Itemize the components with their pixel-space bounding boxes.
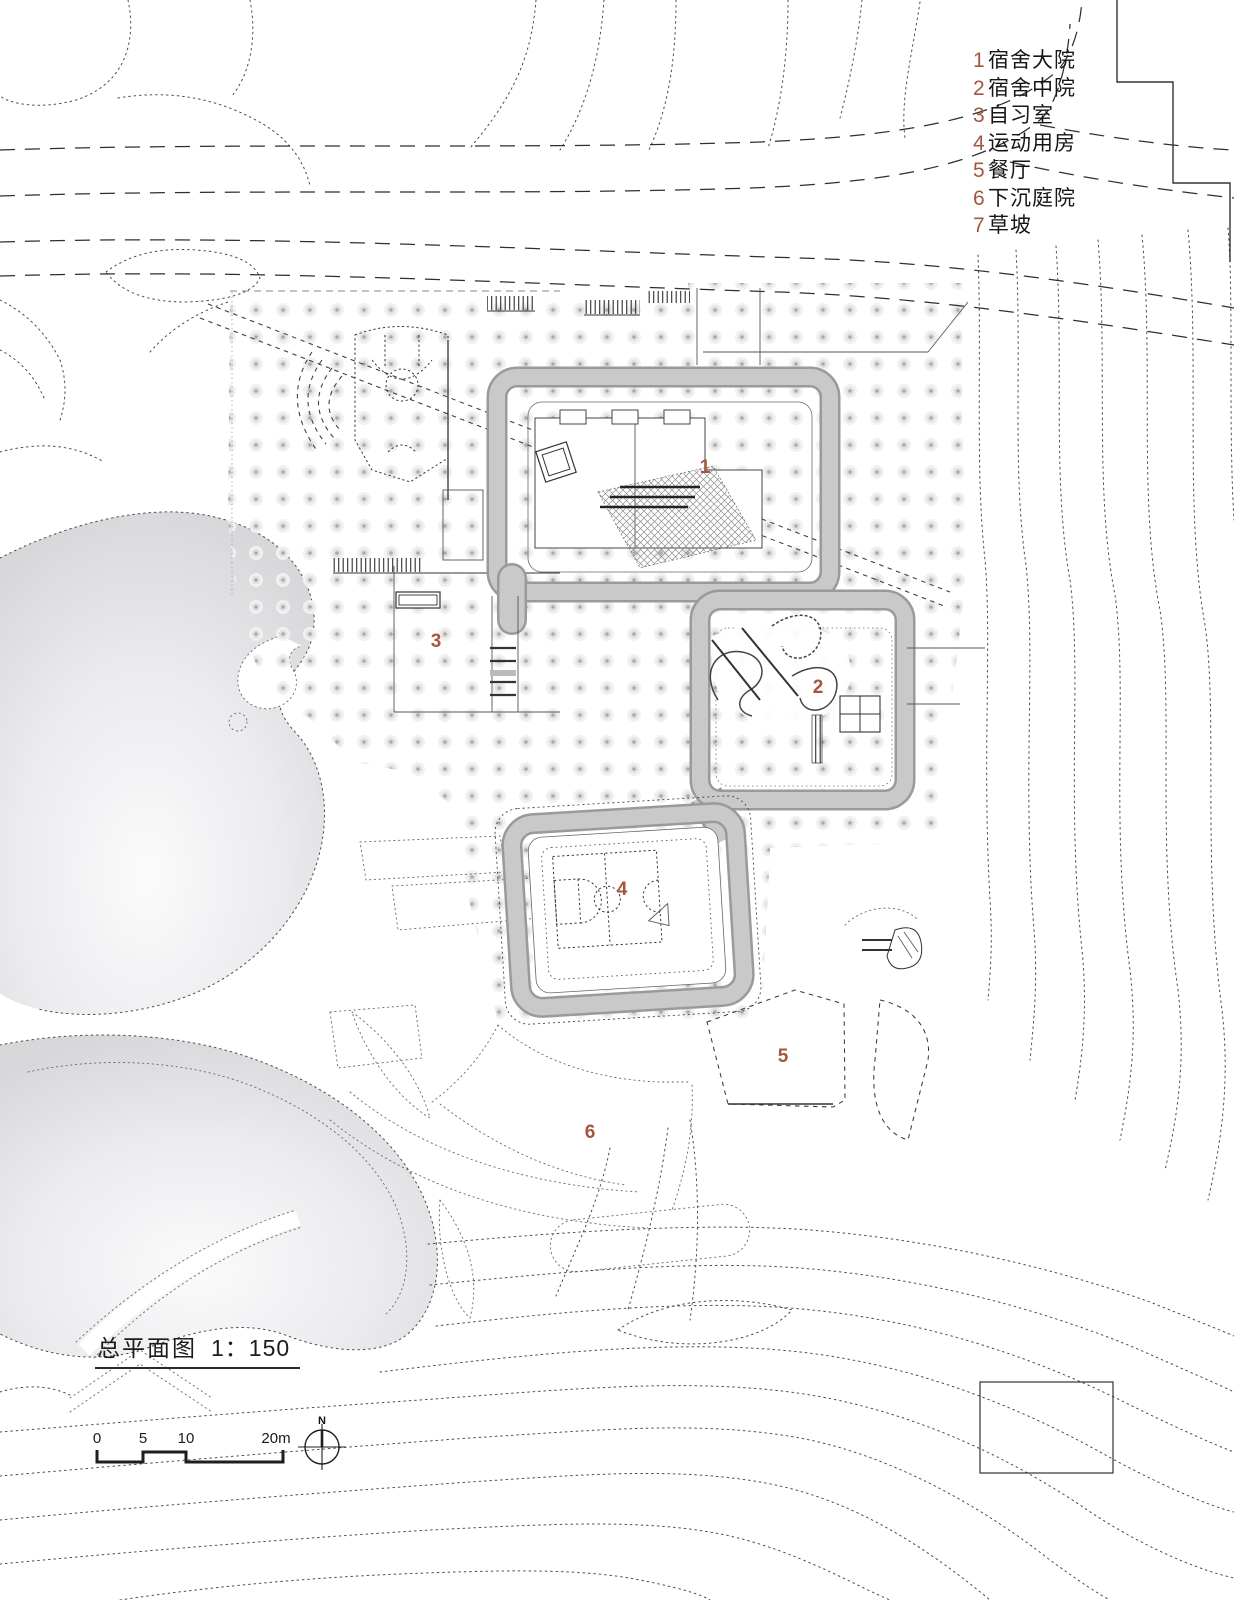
drawing-scale: 1：150 (211, 1335, 290, 1361)
plan-label-6: 6 (585, 1122, 596, 1144)
plan-label-3: 3 (431, 631, 442, 653)
title-block: 总平面图1：150 (95, 1329, 300, 1369)
legend: 1宿舍大院 2宿舍中院 3自习室 4运动用房 5餐厅 6下沉庭院 7草坡 (973, 47, 1076, 240)
scale-bar: 0 5 10 20m (93, 1430, 291, 1462)
legend-number: 2 (973, 75, 988, 103)
legend-number: 7 (973, 212, 988, 240)
north-label: N (318, 1415, 326, 1427)
legend-item: 7草坡 (973, 212, 1076, 240)
legend-label: 宿舍大院 (988, 49, 1076, 72)
scale-tick-10: 10 (178, 1430, 195, 1447)
legend-item: 1宿舍大院 (973, 47, 1076, 75)
legend-item: 4运动用房 (973, 130, 1076, 158)
legend-number: 1 (973, 47, 988, 75)
legend-number: 6 (973, 185, 988, 213)
legend-label: 自习室 (988, 104, 1054, 127)
legend-item: 2宿舍中院 (973, 75, 1076, 103)
legend-item: 6下沉庭院 (973, 185, 1076, 213)
scale-tick-0: 0 (93, 1430, 101, 1447)
legend-number: 4 (973, 130, 988, 158)
plan-label-2: 2 (813, 677, 824, 699)
legend-number: 5 (973, 157, 988, 185)
plan-label-5: 5 (778, 1046, 789, 1068)
plan-label-1: 1 (700, 457, 711, 479)
legend-label: 宿舍中院 (988, 77, 1076, 100)
legend-number: 3 (973, 102, 988, 130)
scale-tick-20m: 20m (261, 1430, 290, 1447)
legend-label: 餐厅 (988, 159, 1032, 182)
legend-label: 下沉庭院 (988, 187, 1076, 210)
plan-label-4: 4 (617, 879, 628, 901)
legend-item: 5餐厅 (973, 157, 1076, 185)
legend-label: 运动用房 (988, 132, 1076, 155)
site-plan-page: { "drawing": { "title": "总平面图", "scale":… (0, 0, 1234, 1600)
legend-item: 3自习室 (973, 102, 1076, 130)
drawing-title: 总平面图 (97, 1335, 197, 1361)
legend-label: 草坡 (988, 214, 1032, 237)
scale-tick-5: 5 (139, 1430, 147, 1447)
north-arrow-icon: N (298, 1415, 346, 1470)
